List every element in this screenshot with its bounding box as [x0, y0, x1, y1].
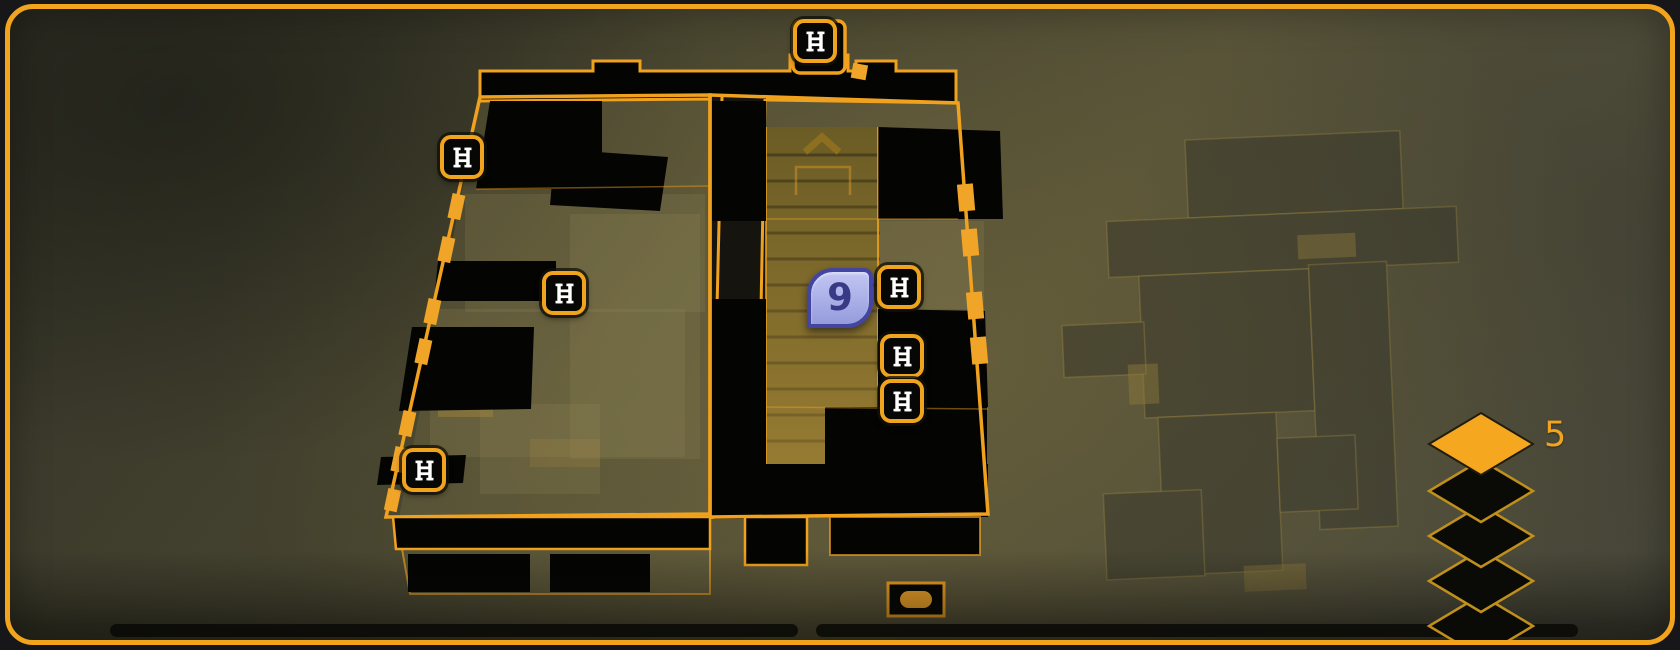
objective-number: 9 — [827, 279, 853, 316]
ladder-icon — [440, 135, 484, 179]
ladder-icon — [542, 271, 586, 315]
ladder-icon — [877, 265, 921, 309]
ladder-icon — [880, 379, 924, 423]
floor-level-indicator: 5 — [1428, 409, 1608, 645]
objective-marker: 9 — [807, 268, 873, 328]
floor-diamond-active[interactable] — [1428, 412, 1534, 476]
map-canvas[interactable]: 9 — [10, 9, 1670, 640]
floor-level-label: 5 — [1544, 415, 1594, 455]
ladder-icon — [880, 334, 924, 378]
map-viewport: 9 5 — [5, 4, 1675, 645]
ladder-icon — [402, 448, 446, 492]
ladder-icon — [793, 19, 837, 63]
map-screen: 9 5 — [0, 0, 1680, 650]
bottom-bar-left — [110, 624, 798, 637]
